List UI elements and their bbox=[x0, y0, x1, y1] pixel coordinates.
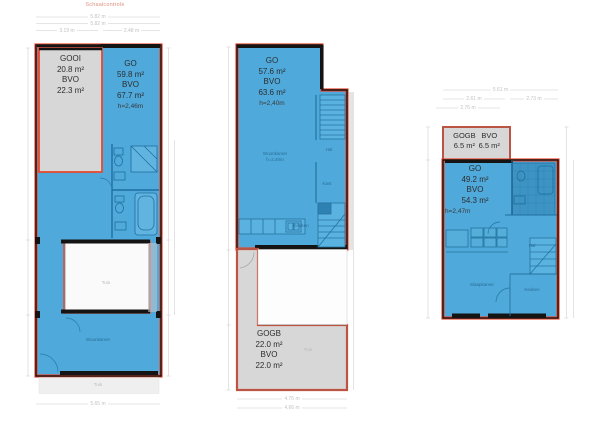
plan1-dim-bottom: 5.65 m bbox=[36, 401, 160, 407]
plan1-gooi-name: GOOI bbox=[39, 54, 102, 65]
plan2-gogb-bvo-value: 22.0 m² bbox=[239, 361, 299, 372]
plan1-dim-bottom-value: 5.65 m bbox=[88, 401, 107, 407]
plan2-room-kast: Kast bbox=[316, 181, 338, 187]
plan1-garden-label: Tuin bbox=[58, 382, 138, 388]
plan2-gogb-bvo-label: BVO bbox=[239, 350, 299, 361]
plan2-gogb-label: GOGB 22.0 m² BVO 22.0 m² bbox=[239, 329, 299, 371]
plan3-go-label: GO 49.2 m² BVO 54.3 m² h=2,47m bbox=[445, 164, 505, 218]
plan3-dim-top2b: 2.73 m bbox=[510, 96, 558, 102]
plan3-dim-top1: 5.61 m bbox=[443, 87, 558, 93]
plan2-gogb-name: GOGB bbox=[239, 329, 299, 340]
floorplan-page: Schaalcontrole 5.82 m 5.82 m 3.19 m 2.48… bbox=[0, 0, 600, 424]
plan1-go-height: h=2,46m bbox=[101, 102, 160, 113]
plan1-courtyard bbox=[61, 240, 157, 314]
plan3-go-bvo-label: BVO bbox=[445, 185, 505, 196]
plan1-gooi-label: GOOI 20.8 m² BVO 22.3 m² bbox=[39, 54, 102, 96]
plan2-go-label: GO 57.6 m² BVO 63.6 m² h=2,40m bbox=[240, 56, 304, 110]
plan2-courtyard bbox=[258, 250, 347, 325]
plan1-dim-top-right: 2.48 m bbox=[103, 28, 160, 34]
plan3-dim-top2a: 2.61 m bbox=[443, 96, 505, 102]
plan1-dim-top-left-value: 3.19 m bbox=[57, 28, 76, 34]
plan2-room-woonkamer-height: h=2,40m bbox=[245, 157, 305, 163]
plan1-dim-top-right-value: 2.48 m bbox=[122, 28, 141, 34]
plan2-side-shadow bbox=[349, 92, 353, 250]
plan1-go-label: GO 59.8 m² BVO 67.7 m² h=2,46m bbox=[101, 59, 160, 113]
plan1-go-name: GO bbox=[101, 59, 160, 70]
plan3-go-area: 49.2 m² bbox=[445, 175, 505, 186]
plan3-room-slaapkamer: Slaapkamer bbox=[450, 282, 514, 288]
plan3-dim-top2a-value: 2.61 m bbox=[464, 96, 483, 102]
plan3-go-bvo-value: 54.3 m² bbox=[445, 196, 505, 207]
plan3-dim-top1-value: 5.61 m bbox=[491, 87, 510, 93]
plan1-dim-top-left: 3.19 m bbox=[36, 28, 98, 34]
plan3-dim-top3: 2.76 m bbox=[436, 105, 500, 111]
plan1-dim-top1-value: 5.82 m bbox=[88, 14, 107, 20]
plan3-gogb-area: 6.5 m² bbox=[453, 141, 476, 151]
plan1-go-area: 59.8 m² bbox=[101, 70, 160, 81]
plan1-go-bvo-value: 67.7 m² bbox=[101, 91, 160, 102]
plan3-gogb-label: GOGB 6.5 m² BVO 6.5 m² bbox=[444, 131, 509, 151]
plan2-room-keuken: Keuken bbox=[280, 223, 322, 229]
plan2-dim-bottom2: 4.66 m bbox=[237, 405, 347, 411]
plan3-go-name: GO bbox=[445, 164, 505, 175]
plan1-go-bvo-label: BVO bbox=[101, 80, 160, 91]
plan3-dim-top2b-value: 2.73 m bbox=[524, 96, 543, 102]
plan2-dim-bottom1: 4.76 m bbox=[237, 396, 347, 402]
plan2-go-height: h=2,40m bbox=[240, 99, 304, 110]
plan1-gooi-bvo-value: 22.3 m² bbox=[39, 86, 102, 97]
plan2-gogb-area: 22.0 m² bbox=[239, 340, 299, 351]
plan2-dim-bottom1-value: 4.76 m bbox=[282, 396, 301, 402]
plan3-bathroom bbox=[505, 160, 557, 215]
plan2-go-bvo-label: BVO bbox=[240, 77, 304, 88]
plan3-room-keuken: Keuken bbox=[512, 287, 552, 293]
plan1-room-woonkamer: Woonkamer bbox=[58, 337, 138, 343]
plan2-go-area: 57.6 m² bbox=[240, 67, 304, 78]
plan2-dim-bottom2-value: 4.66 m bbox=[282, 405, 301, 411]
plan3-go-height: h=2,47m bbox=[445, 207, 505, 218]
plan3-dim-top3-value: 2.76 m bbox=[458, 105, 477, 111]
scale-check-label: Schaalcontrole bbox=[75, 2, 135, 8]
plan1-courtyard-label: Tuin bbox=[70, 280, 142, 286]
plan3-gogb-col1: GOGB 6.5 m² bbox=[453, 131, 476, 151]
plan2-go-bvo-value: 63.6 m² bbox=[240, 88, 304, 99]
plan2-room-woonkamer: Woonkamer h=2,40m bbox=[245, 151, 305, 162]
plan1-gooi-area: 20.8 m² bbox=[39, 65, 102, 76]
plan2-room-hal: Hal bbox=[318, 147, 340, 153]
plan1-dim-top2: 5.82 m bbox=[36, 21, 160, 27]
plan3-gogb-name: GOGB bbox=[453, 131, 476, 141]
plan3-gogb-col2: BVO 6.5 m² bbox=[479, 131, 500, 151]
plan1-dim-top1: 5.82 m bbox=[36, 14, 160, 20]
plan1-dim-top2-value: 5.82 m bbox=[88, 21, 107, 27]
plan3-gogb-bvo-label: BVO bbox=[479, 131, 500, 141]
plan2-go-name: GO bbox=[240, 56, 304, 67]
plan3-gogb-bvo-value: 6.5 m² bbox=[479, 141, 500, 151]
plan3-room-hal: Hal bbox=[522, 243, 542, 249]
plan1-gooi-bvo-label: BVO bbox=[39, 75, 102, 86]
